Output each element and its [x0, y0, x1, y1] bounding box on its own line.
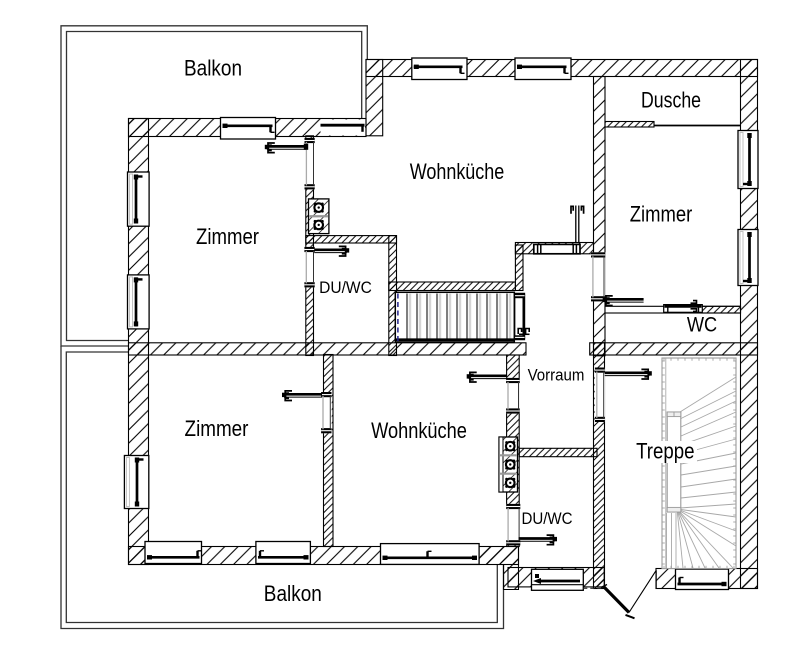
svg-text:Dusche: Dusche [641, 88, 701, 113]
svg-text:Zimmer: Zimmer [196, 224, 259, 249]
svg-text:Balkon: Balkon [264, 581, 322, 606]
svg-text:Vorraum: Vorraum [528, 366, 585, 385]
svg-text:DU/WC: DU/WC [319, 278, 372, 297]
svg-text:Wohnküche: Wohnküche [410, 159, 505, 184]
svg-text:Wohnküche: Wohnküche [371, 418, 467, 443]
svg-text:Zimmer: Zimmer [630, 202, 693, 227]
svg-text:Balkon: Balkon [184, 56, 242, 81]
svg-text:Treppe: Treppe [636, 439, 694, 464]
svg-text:Zimmer: Zimmer [185, 416, 249, 441]
svg-text:DU/WC: DU/WC [521, 509, 572, 528]
svg-text:WC: WC [687, 314, 717, 337]
